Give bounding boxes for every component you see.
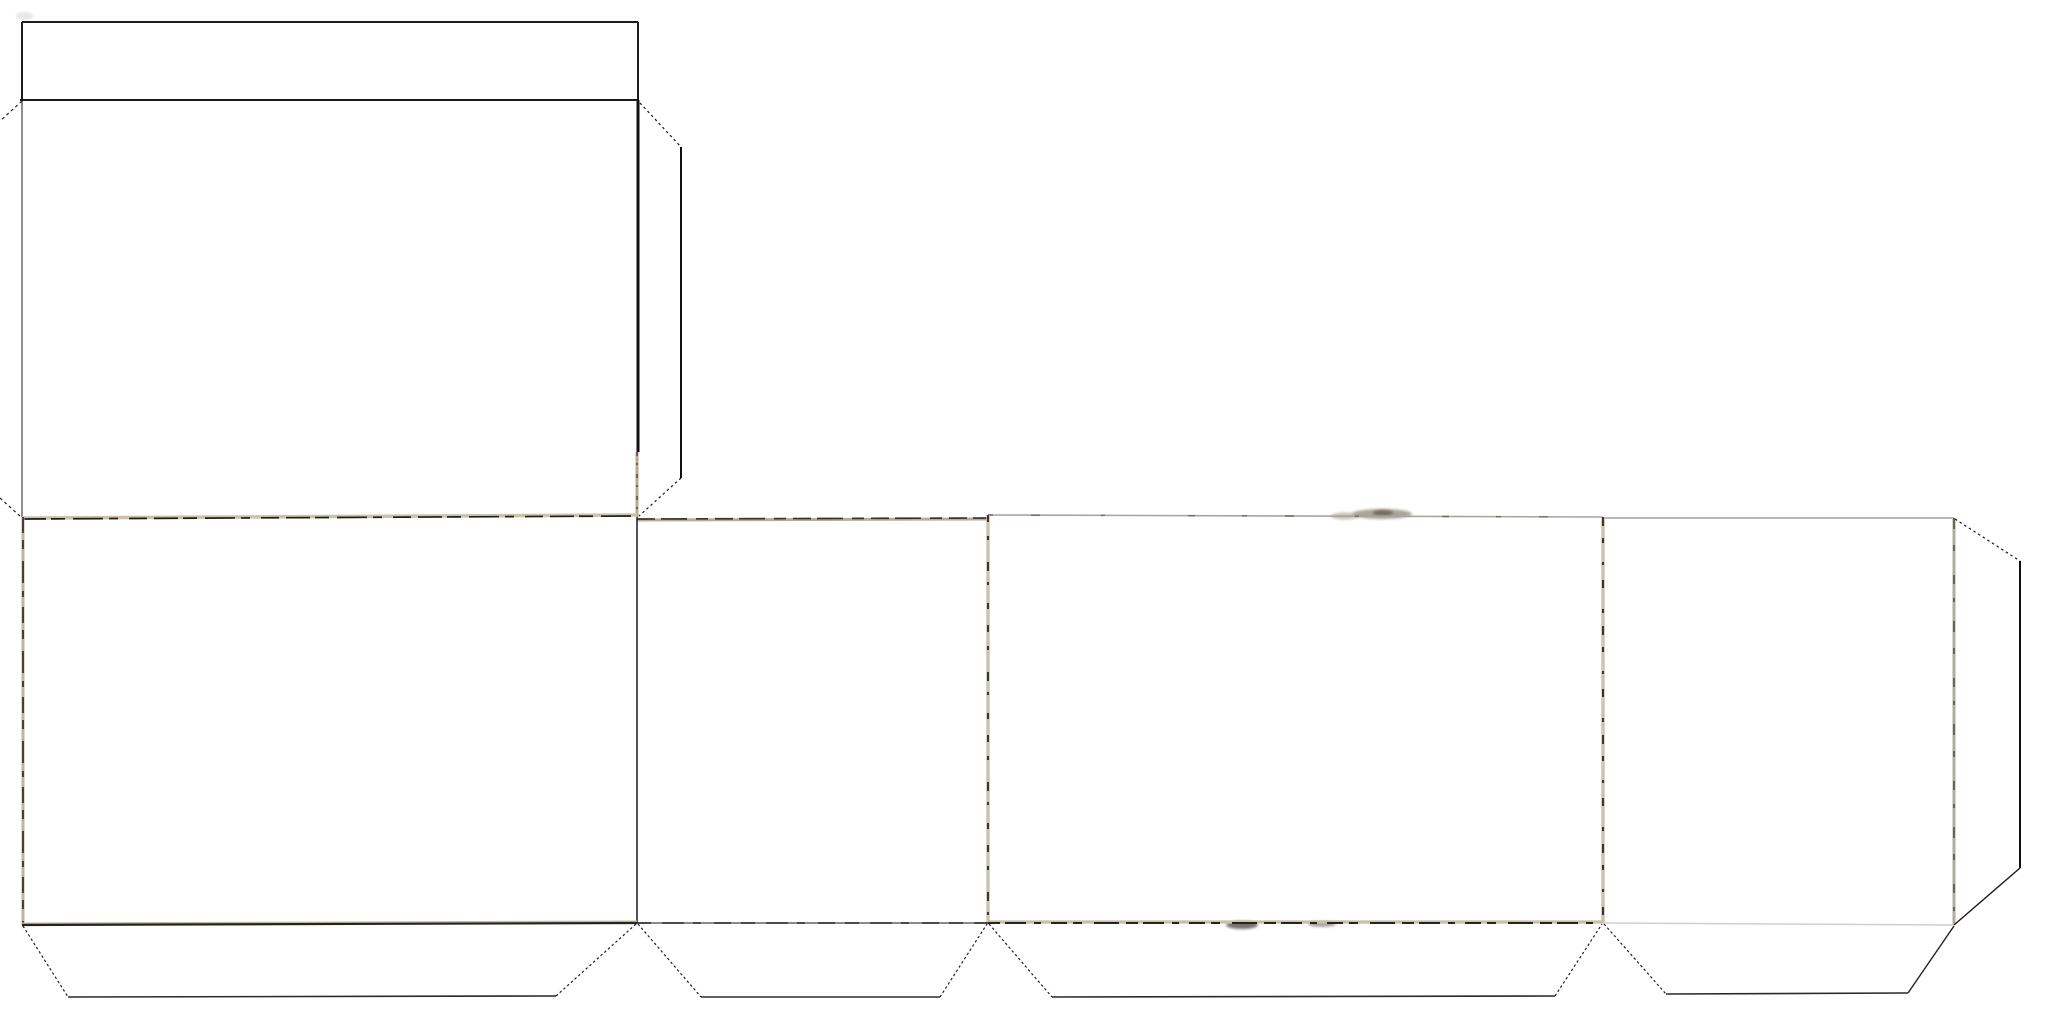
- bottom-flap-1-bottom-edge: [68, 996, 556, 997]
- row-top-fold-2-tan: [637, 519, 988, 520]
- panel-3-wide: [988, 515, 1603, 923]
- bottom-glue-flap-2: [637, 923, 988, 997]
- bottom-glue-flap-1: [22, 923, 637, 997]
- bottom-flap-3-bottom-edge: [1052, 996, 1555, 997]
- end-glue-flap: [1954, 518, 2020, 925]
- panel-1-wide: [22, 517, 637, 924]
- panel-2-narrow: [637, 517, 988, 923]
- cut-corner-top-left: [0, 101, 22, 121]
- bottom-flap-4-bottom-edge: [1666, 993, 1908, 994]
- right-glue-flap: [638, 103, 681, 516]
- panel-4-narrow: [1603, 518, 1954, 924]
- top-panel: [22, 100, 638, 517]
- bottom-glue-flap-4: [1603, 923, 1954, 994]
- bottom-glue-flap-3: [988, 923, 1603, 997]
- box-net-template: [0, 0, 2050, 1024]
- net-regions-layer: [22, 22, 2020, 997]
- lid-flap: [22, 22, 638, 100]
- cut-corner-mid-left: [0, 498, 21, 517]
- box-net-svg: [0, 0, 2050, 1024]
- tape-smudge-panel3-top-core: [1373, 510, 1393, 516]
- lid-corner-ghost-mark: [16, 12, 34, 20]
